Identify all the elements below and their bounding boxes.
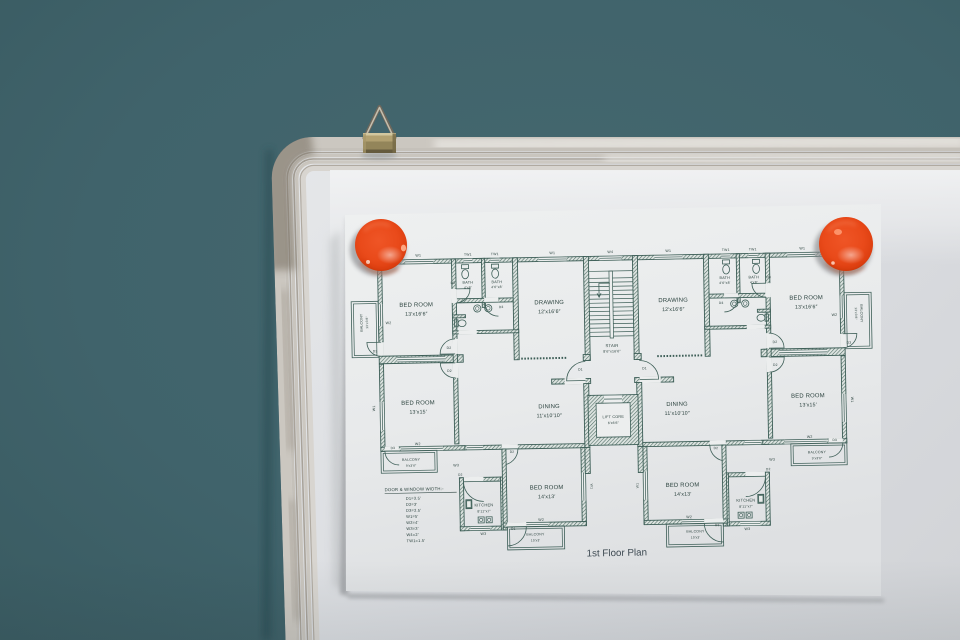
svg-text:9′x3′6″: 9′x3′6″ — [406, 464, 417, 468]
svg-text:W4: W4 — [607, 250, 613, 254]
svg-text:BALCONY: BALCONY — [359, 313, 363, 332]
svg-text:4′x8′: 4′x8′ — [750, 280, 758, 284]
svg-text:DINING: DINING — [538, 404, 560, 410]
svg-text:BALCONY: BALCONY — [526, 532, 545, 536]
svg-text:D2: D2 — [447, 369, 452, 373]
svg-text:W4=2′: W4=2′ — [406, 532, 418, 537]
svg-text:W1: W1 — [850, 397, 854, 403]
svg-text:13′x16′6″: 13′x16′6″ — [795, 304, 818, 310]
svg-text:W2: W2 — [832, 313, 838, 317]
svg-text:1st Floor Plan: 1st Floor Plan — [586, 547, 647, 559]
svg-text:BATH: BATH — [748, 275, 759, 279]
svg-text:BED ROOM: BED ROOM — [530, 485, 564, 492]
svg-text:BATH: BATH — [462, 281, 473, 285]
svg-text:W1: W1 — [590, 484, 594, 490]
svg-text:W3: W3 — [480, 532, 486, 536]
svg-text:BALCONY: BALCONY — [859, 304, 863, 323]
svg-text:13′x15′: 13′x15′ — [409, 409, 427, 415]
svg-text:W2: W2 — [538, 518, 544, 522]
svg-text:W1: W1 — [799, 246, 805, 250]
svg-text:D2: D2 — [458, 473, 463, 477]
svg-text:D2=3′: D2=3′ — [406, 502, 418, 507]
svg-text:W3: W3 — [453, 463, 459, 467]
svg-text:TW1: TW1 — [749, 247, 757, 251]
svg-text:W3: W3 — [744, 527, 750, 531]
svg-text:D3: D3 — [832, 438, 837, 442]
svg-text:11′x10′10″: 11′x10′10″ — [537, 413, 562, 419]
svg-text:13′x16′6″: 13′x16′6″ — [405, 311, 428, 317]
svg-text:4′x8′: 4′x8′ — [464, 286, 472, 290]
svg-text:D3: D3 — [766, 275, 771, 279]
svg-text:12′x16′6″: 12′x16′6″ — [662, 307, 685, 313]
svg-text:D1=3.5′: D1=3.5′ — [406, 496, 421, 501]
svg-text:D2: D2 — [773, 363, 778, 367]
svg-text:KITCHEN: KITCHEN — [736, 497, 755, 502]
svg-text:BALCONY: BALCONY — [686, 529, 705, 533]
svg-text:W2: W2 — [386, 321, 392, 325]
svg-text:D3: D3 — [373, 349, 378, 353]
svg-text:D3: D3 — [499, 305, 504, 309]
svg-text:6′x6′6″: 6′x6′6″ — [608, 421, 620, 425]
svg-text:D1: D1 — [715, 523, 720, 527]
svg-text:W1: W1 — [372, 405, 376, 411]
svg-text:D3: D3 — [719, 301, 724, 305]
svg-text:10′x3′: 10′x3′ — [691, 535, 701, 539]
svg-text:13′x3′8″: 13′x3′8″ — [365, 315, 369, 328]
svg-text:D3: D3 — [847, 341, 852, 345]
svg-text:W1: W1 — [636, 483, 640, 489]
svg-text:W3: W3 — [769, 458, 775, 462]
svg-text:14′x13′: 14′x13′ — [674, 492, 692, 498]
svg-text:STAIR: STAIR — [605, 343, 618, 348]
svg-text:8′6″x16′6″: 8′6″x16′6″ — [603, 349, 621, 353]
svg-text:LIFT CORE: LIFT CORE — [602, 415, 624, 419]
svg-text:D2: D2 — [773, 340, 778, 344]
svg-text:W1: W1 — [549, 251, 555, 255]
svg-text:D2: D2 — [447, 346, 452, 350]
svg-text:D2: D2 — [714, 446, 719, 450]
svg-text:DINING: DINING — [666, 402, 688, 408]
svg-text:D3: D3 — [451, 281, 456, 285]
svg-text:11′x10′10″: 11′x10′10″ — [665, 411, 690, 417]
svg-text:DRAWING: DRAWING — [534, 300, 564, 307]
svg-text:W1=5′: W1=5′ — [406, 514, 418, 519]
svg-text:W2: W2 — [686, 515, 692, 519]
svg-text:W2=4′: W2=4′ — [406, 520, 418, 525]
svg-text:W3=3′: W3=3′ — [406, 526, 418, 531]
svg-text:DRAWING: DRAWING — [658, 298, 688, 305]
svg-text:4′6″x8′: 4′6″x8′ — [719, 281, 730, 285]
svg-text:D3=2.5′: D3=2.5′ — [406, 508, 421, 513]
svg-text:8′11″x7′: 8′11″x7′ — [477, 509, 491, 513]
svg-text:D1: D1 — [642, 366, 647, 370]
svg-text:TW1: TW1 — [464, 253, 472, 257]
svg-text:10′x3′: 10′x3′ — [531, 538, 541, 542]
svg-text:14′x13′: 14′x13′ — [538, 494, 556, 500]
svg-text:BED ROOM: BED ROOM — [789, 295, 823, 302]
svg-text:13′x3′8″: 13′x3′8″ — [854, 307, 858, 320]
svg-text:BATH: BATH — [719, 276, 730, 280]
svg-text:D1: D1 — [511, 527, 516, 531]
svg-text:BED ROOM: BED ROOM — [399, 302, 433, 309]
svg-text:BALCONY: BALCONY — [808, 450, 827, 454]
svg-text:D1: D1 — [578, 368, 583, 372]
svg-text:BED ROOM: BED ROOM — [401, 400, 435, 407]
svg-text:W1: W1 — [415, 253, 421, 257]
svg-text:9′x3′6″: 9′x3′6″ — [812, 456, 823, 460]
svg-text:W2: W2 — [415, 442, 421, 446]
svg-text:KITCHEN: KITCHEN — [474, 502, 493, 507]
svg-text:BATH: BATH — [491, 280, 502, 284]
svg-text:13′x15′: 13′x15′ — [799, 402, 817, 408]
svg-text:BALCONY: BALCONY — [402, 458, 421, 462]
svg-text:BED ROOM: BED ROOM — [791, 393, 825, 400]
svg-text:8′11″x7′: 8′11″x7′ — [739, 504, 753, 508]
svg-text:TW1: TW1 — [722, 248, 730, 252]
svg-text:12′x16′6″: 12′x16′6″ — [538, 309, 561, 315]
svg-text:TW1=1.5′: TW1=1.5′ — [406, 538, 425, 543]
svg-text:TW1: TW1 — [491, 252, 499, 256]
svg-text:4′6″x8′: 4′6″x8′ — [491, 285, 502, 289]
svg-text:D2: D2 — [766, 467, 771, 471]
svg-text:W2: W2 — [807, 435, 813, 439]
svg-text:D2: D2 — [510, 450, 515, 454]
svg-text:D3: D3 — [391, 446, 396, 450]
svg-text:BED ROOM: BED ROOM — [666, 482, 700, 489]
svg-text:W1: W1 — [665, 249, 671, 253]
